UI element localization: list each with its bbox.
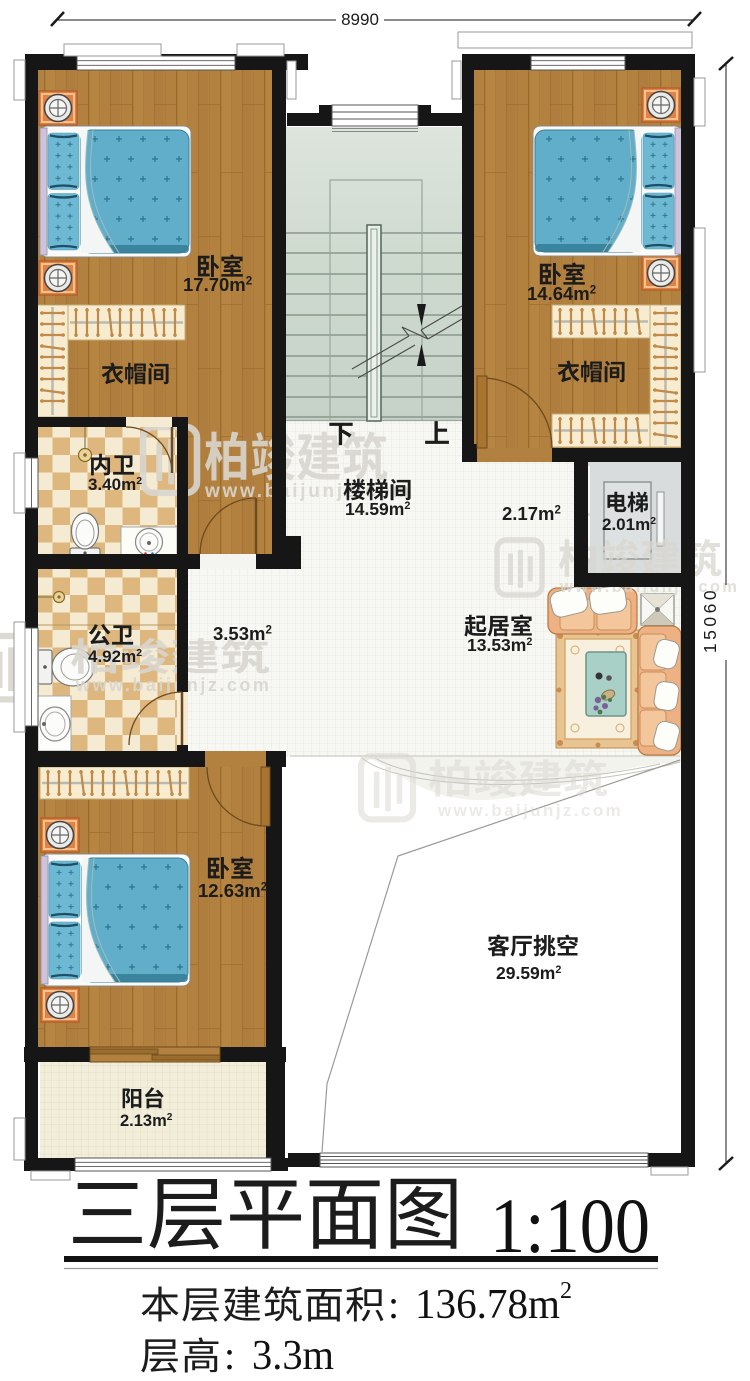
svg-text:8990: 8990 — [341, 10, 379, 29]
svg-text:2.01m2: 2.01m2 — [602, 515, 656, 534]
svg-text:17.70m2: 17.70m2 — [183, 274, 252, 295]
svg-text:13.53m2: 13.53m2 — [467, 635, 532, 655]
svg-text:14.64m2: 14.64m2 — [527, 283, 596, 304]
svg-text:136.78m: 136.78m — [415, 1282, 560, 1328]
svg-text:15060: 15060 — [700, 587, 720, 653]
svg-text:www.baijunjz.com: www.baijunjz.com — [437, 801, 623, 820]
svg-text:2: 2 — [560, 1278, 572, 1304]
svg-text:3.40m2: 3.40m2 — [88, 475, 142, 494]
svg-text:29.59m2: 29.59m2 — [496, 963, 561, 983]
svg-text:12.63m2: 12.63m2 — [198, 880, 267, 901]
svg-text::: : — [388, 1282, 399, 1327]
svg-text:3.3m: 3.3m — [252, 1333, 334, 1379]
svg-text:1:100: 1:100 — [490, 1182, 650, 1269]
svg-text:www.baijunjz.com: www.baijunjz.com — [75, 675, 271, 695]
svg-text:14.59m2: 14.59m2 — [345, 499, 410, 519]
svg-text:2.13m2: 2.13m2 — [120, 1112, 173, 1130]
svg-text:2.17m2: 2.17m2 — [502, 503, 561, 524]
svg-text:4.92m2: 4.92m2 — [88, 647, 142, 666]
svg-text:3.53m2: 3.53m2 — [213, 623, 272, 644]
svg-text::: : — [224, 1333, 235, 1378]
